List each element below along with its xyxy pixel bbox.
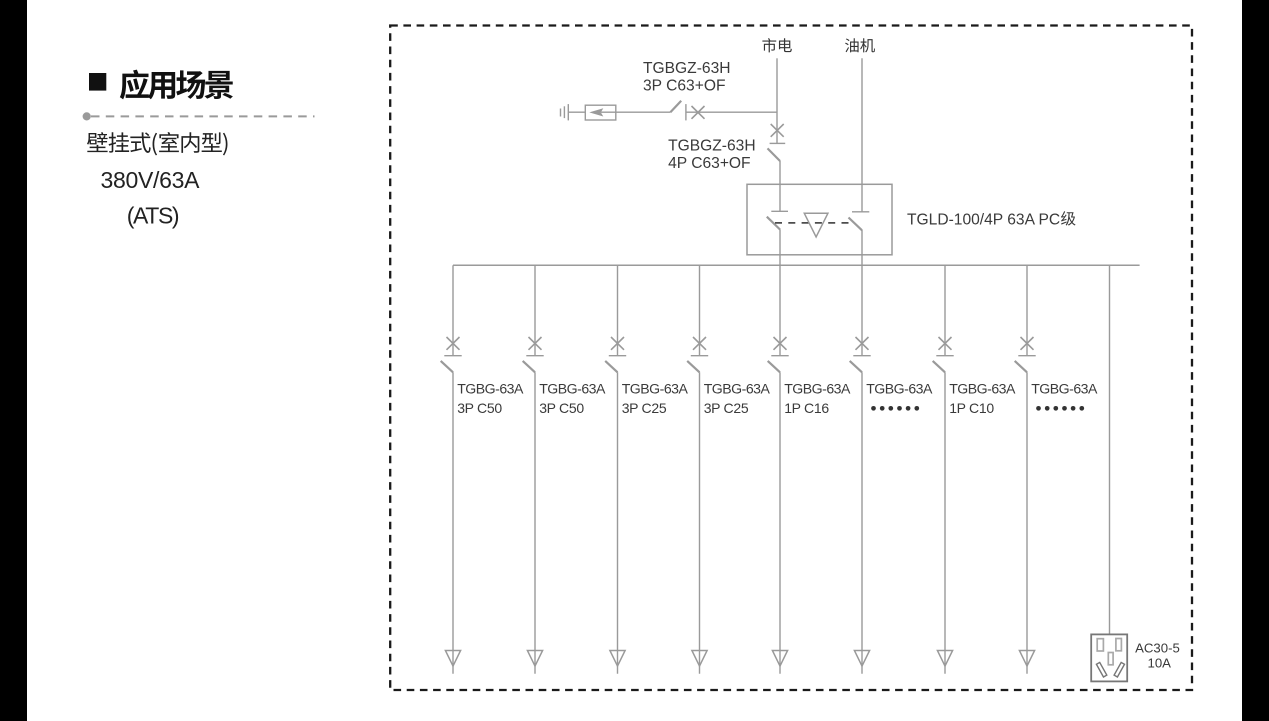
svg-text:TGBG-63A: TGBG-63A xyxy=(949,381,1016,397)
svg-text:1P C10: 1P C10 xyxy=(949,400,994,416)
svg-text:TGBG-63A: TGBG-63A xyxy=(784,381,851,397)
svg-text:TGLD-100/4P 63A PC: TGLD-100/4P 63A PC xyxy=(907,211,1060,228)
svg-text:TGBGZ-63H: TGBGZ-63H xyxy=(668,137,756,154)
svg-text:10A: 10A xyxy=(1148,655,1172,670)
svg-text:1P C16: 1P C16 xyxy=(784,400,829,416)
svg-text:3P C50: 3P C50 xyxy=(539,400,584,416)
svg-text:3P C50: 3P C50 xyxy=(457,400,502,416)
svg-text:380V/63A: 380V/63A xyxy=(101,167,201,193)
svg-text:3P C63+OF: 3P C63+OF xyxy=(643,78,726,95)
svg-text:4P C63+OF: 4P C63+OF xyxy=(668,155,751,172)
svg-text:3P C25: 3P C25 xyxy=(704,400,749,416)
svg-text:(ATS): (ATS) xyxy=(127,203,179,229)
svg-text:TGBG-63A: TGBG-63A xyxy=(1031,381,1098,397)
svg-text:TGBG-63A: TGBG-63A xyxy=(622,381,689,397)
svg-text:TGBGZ-63H: TGBGZ-63H xyxy=(643,60,731,77)
svg-text:TGBG-63A: TGBG-63A xyxy=(704,381,771,397)
svg-text:TGBG-63A: TGBG-63A xyxy=(539,381,606,397)
svg-text:AC30-5: AC30-5 xyxy=(1135,641,1180,656)
svg-text:3P C25: 3P C25 xyxy=(622,400,667,416)
svg-text:TGBG-63A: TGBG-63A xyxy=(457,381,524,397)
svg-text:TGBG-63A: TGBG-63A xyxy=(866,381,933,397)
